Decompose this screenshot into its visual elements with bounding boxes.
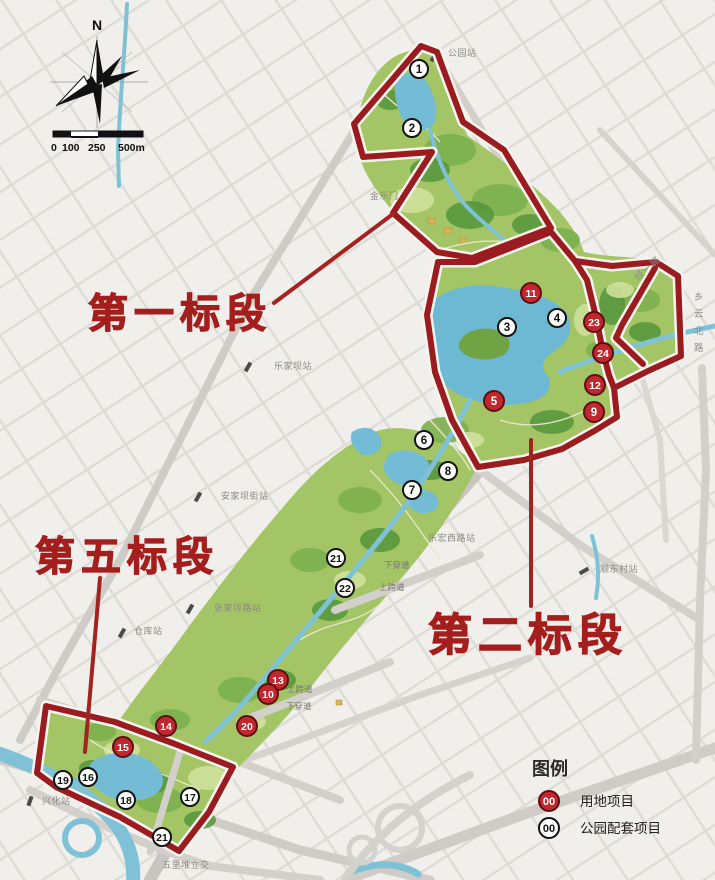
park-support-marker-4: 4 [548,309,566,327]
svg-text:7: 7 [409,485,415,497]
svg-text:18: 18 [120,795,132,807]
land-project-marker-9: 9 [584,402,604,422]
land-project-marker-12: 12 [585,375,605,395]
svg-text:22: 22 [339,583,351,595]
park-support-marker-17: 17 [181,788,199,806]
svg-text:21: 21 [156,832,168,844]
legend-item-land-project: 00 用地项目 [539,791,634,811]
park-support-marker-21: 21 [327,549,345,567]
land-project-marker-23: 23 [584,312,604,332]
station-label: 安家坝街站 [221,490,269,501]
svg-text:3: 3 [504,322,510,334]
park-support-marker-21: 21 [153,828,171,846]
svg-text:4: 4 [554,313,561,325]
svg-text:16: 16 [82,772,94,784]
section-2-label: 第二标段 [428,611,628,660]
svg-text:9: 9 [591,407,597,419]
section-5-label: 第五标段 [35,535,219,579]
passage-label: 上跨道 [287,684,313,694]
park-support-marker-18: 18 [117,791,135,809]
park-support-marker-8: 8 [439,462,457,480]
svg-text:24: 24 [597,348,609,360]
station-label: 张家坪路站 [214,602,262,613]
legend-red-label: 用地项目 [580,794,634,809]
svg-text:11: 11 [525,288,536,300]
svg-text:8: 8 [445,466,452,478]
station-label: 兴化站 [42,795,71,806]
station-label: 乐家坝站 [274,360,312,371]
north-label: N [92,17,102,33]
station-label: 仓库站 [134,625,163,636]
legend-item-park-support-project: 00 公园配套项目 [539,818,661,838]
svg-text:1: 1 [416,64,423,76]
legend-white-symbol: 00 [543,823,555,835]
svg-text:14: 14 [160,721,172,733]
park-support-marker-1: 1 [410,60,428,78]
svg-text:5: 5 [491,396,498,408]
land-project-marker-20: 20 [237,716,257,736]
land-project-marker-5: 5 [484,391,504,411]
station-label: 金乐门 [370,190,399,201]
station-label: 乐宏西路站 [428,532,476,543]
land-project-marker-10: 10 [258,684,278,704]
park-support-marker-3: 3 [498,318,516,336]
park-support-marker-2: 2 [403,119,421,137]
svg-text:10: 10 [262,689,274,701]
scale-500m: 500m [118,142,145,154]
svg-text:20: 20 [241,721,253,733]
legend-title: 图例 [532,758,568,779]
planning-map-page: 公园站金乐门乐家坝站安家坝街站乐宏西路站顺东村站张家坪路站仓库站兴化站五里堆立交… [0,0,715,880]
land-project-marker-14: 14 [156,716,176,736]
svg-text:2: 2 [409,123,415,135]
passage-label: 上跨道 [379,582,405,592]
land-project-marker-24: 24 [593,343,613,363]
svg-text:23: 23 [588,317,600,329]
svg-text:21: 21 [330,553,342,565]
section-1-label: 第一标段 [88,292,272,336]
passage-label: 下穿道 [286,701,312,711]
svg-text:15: 15 [117,742,129,754]
legend-white-label: 公园配套项目 [580,821,661,836]
park-support-marker-19: 19 [54,771,72,789]
svg-text:19: 19 [57,775,69,787]
scale-0: 0 [51,142,57,154]
park-support-marker-6: 6 [415,431,433,449]
svg-text:6: 6 [421,435,427,447]
svg-text:12: 12 [589,380,601,392]
map-canvas: 公园站金乐门乐家坝站安家坝街站乐宏西路站顺东村站张家坪路站仓库站兴化站五里堆立交… [0,0,715,880]
scale-bar: 0 100 250 500m [51,131,145,154]
passage-label: 下穿道 [384,560,410,570]
park-support-marker-22: 22 [336,579,354,597]
park-support-marker-7: 7 [403,481,421,499]
land-project-marker-15: 15 [113,737,133,757]
station-label: 顺东村站 [600,563,638,574]
station-label: 五里堆立交 [162,859,210,870]
station-label: 公园站 [448,47,477,58]
scale-100: 100 [62,142,80,154]
legend-red-symbol: 00 [543,796,555,808]
park-support-marker-16: 16 [79,768,97,786]
scale-250: 250 [88,142,106,154]
svg-text:17: 17 [184,792,196,804]
land-project-marker-11: 11 [521,283,541,303]
